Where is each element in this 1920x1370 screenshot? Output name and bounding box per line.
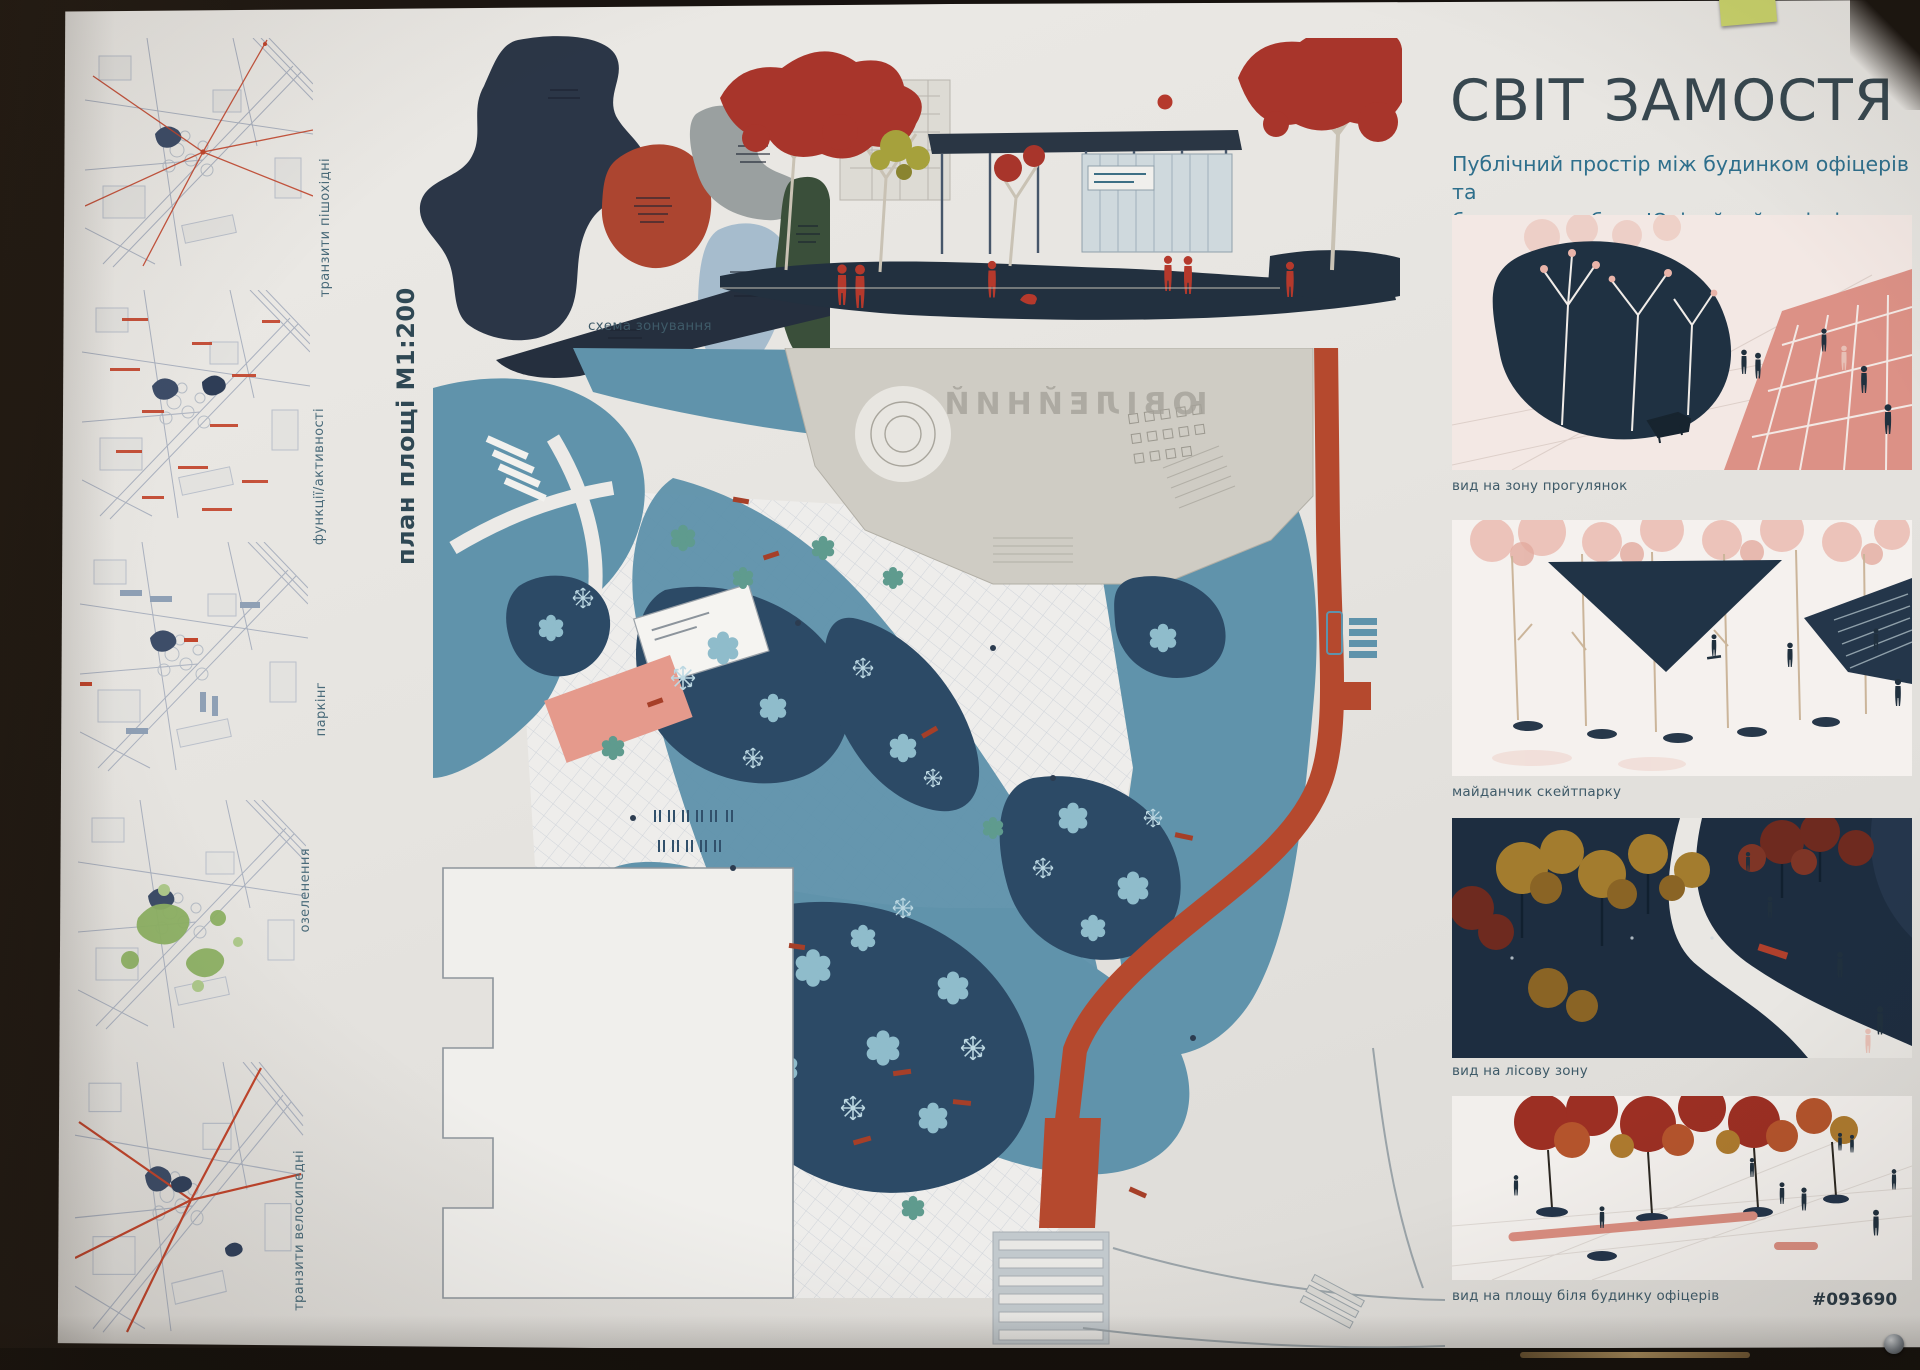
poster-subtitle-line1: Публічний простір між будинком офіцерів … (1452, 150, 1920, 207)
map-label-parking: паркінг (314, 682, 329, 736)
ledge-glint (1520, 1352, 1750, 1358)
building-name-mirrored: ЮВІЛЕЙНИЙ (938, 386, 1207, 422)
render-caption-skatepark: майданчик скейтпарку (1452, 784, 1621, 800)
push-pin (1884, 1334, 1904, 1354)
map-parking (80, 542, 308, 772)
photo-corner-shadow (1850, 0, 1920, 110)
render-caption-forest-zone: вид на лісову зону (1452, 1063, 1588, 1079)
board-code: #093690 (1812, 1290, 1897, 1310)
render-officers-house-square (1452, 1096, 1912, 1280)
render-caption-officers-square: вид на площу біля будинку офіцерів (1452, 1288, 1719, 1304)
map-greening (78, 800, 306, 1034)
poster-title: СВІТ ЗАМОСТЯ (1450, 68, 1894, 134)
photo-of-presentation-board: транзити пішохідні функції/активності (0, 0, 1920, 1370)
render-forest-zone (1452, 818, 1912, 1058)
plan-scale-label: план площі М1:200 (392, 330, 420, 565)
map-label-bicycle: транзити велосипедні (292, 1150, 307, 1311)
map-label-functions: функції/активності (312, 408, 327, 545)
map-bicycle-transit (75, 1062, 305, 1334)
render-skatepark (1452, 520, 1912, 776)
site-plan: ЮВІЛЕЙНИЙ (433, 348, 1445, 1350)
map-label-pedestrian: транзити пішохідні (318, 158, 333, 297)
map-functions-activities (82, 290, 310, 526)
street-view-illustration (690, 38, 1402, 338)
render-walking-zone (1452, 215, 1912, 470)
render-caption-walking-zone: вид на зону прогулянок (1452, 478, 1627, 494)
map-pedestrian-transit (85, 38, 313, 268)
map-label-greening: озеленення (298, 848, 313, 933)
